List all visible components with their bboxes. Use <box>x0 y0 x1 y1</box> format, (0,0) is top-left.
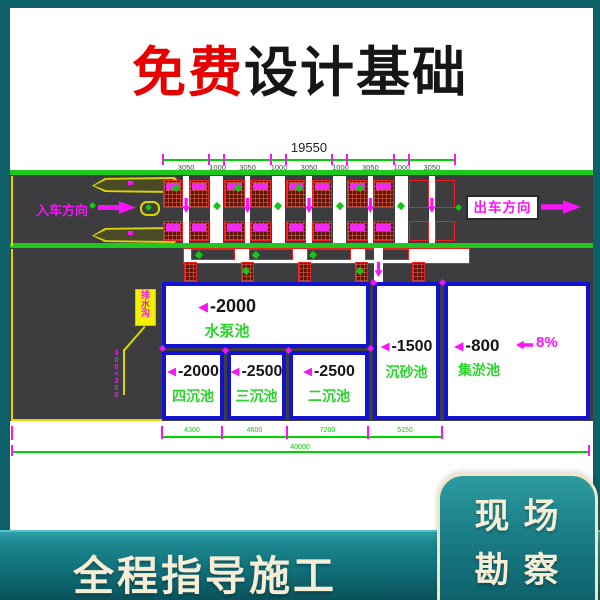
dim-label-bottom: 7200 <box>287 427 368 434</box>
promo-image: 免费设计基础 入车方向 出车方向 <box>0 0 600 600</box>
dim-overall-label: 40000 <box>240 444 360 451</box>
triangle-marker-icon: ◀ <box>198 299 208 314</box>
annotation-label: 排水沟 <box>139 290 152 317</box>
block-cap <box>350 224 364 231</box>
dim-line-top <box>163 159 455 161</box>
wash-block <box>312 180 332 208</box>
dim-label: 1000 <box>271 163 286 172</box>
wash-block <box>189 180 209 208</box>
pool-pump-depth: ◀-2000 <box>162 296 292 317</box>
dim-label: 3050 <box>286 163 332 172</box>
block-cap <box>315 183 329 190</box>
block-cap <box>192 224 206 231</box>
dim-label-bottom: 4300 <box>162 427 222 434</box>
slope-label: 8% <box>536 334 558 351</box>
pool-sand-depth: ◀-1500 <box>373 338 440 356</box>
block-cap <box>289 224 303 231</box>
wash-block-outline <box>409 180 429 208</box>
triangle-marker-icon: ◀ <box>167 366 176 378</box>
dim-label: 1000 <box>332 163 347 172</box>
triangle-marker-icon: ◀ <box>303 366 312 378</box>
pool-sand-name: 沉砂池 <box>373 362 440 382</box>
island-mark <box>128 181 133 185</box>
dim-label: 3050 <box>163 163 209 172</box>
dim-tick <box>588 445 590 456</box>
dim-tick <box>11 445 13 456</box>
wash-block <box>373 221 393 241</box>
dim-label: 1000 <box>209 163 224 172</box>
triangle-marker-icon: ◀ <box>231 366 240 378</box>
annotation-box: 排水沟 <box>135 289 156 326</box>
leader-line <box>123 349 125 395</box>
wash-block <box>224 180 244 208</box>
dim-label: 3050 <box>224 163 270 172</box>
block-cap <box>315 224 329 231</box>
dim-label: 3050 <box>409 163 455 172</box>
block-cap <box>253 224 267 231</box>
card-line-1: 现场 <box>440 488 595 539</box>
block-cap <box>253 183 267 190</box>
pool-fourth-name: 四沉池 <box>162 386 224 406</box>
pool-fourth-depth: ◀-2000 <box>162 363 224 381</box>
wash-block-outline <box>409 221 429 241</box>
wash-block <box>163 221 183 241</box>
dim-tick <box>11 426 13 440</box>
wash-block <box>286 180 306 208</box>
triangle-marker-icon: ◀ <box>381 341 390 353</box>
wash-block <box>250 180 270 208</box>
dim-label: 3050 <box>347 163 393 172</box>
dim-label-bottom: 5150 <box>368 427 442 434</box>
wash-block <box>312 221 332 241</box>
drain-bay <box>365 249 409 260</box>
pier-stub <box>298 262 311 282</box>
dim-line-bottom <box>162 436 442 438</box>
dim-tick <box>454 154 456 165</box>
block-cap <box>227 224 241 231</box>
wash-block <box>189 221 209 241</box>
banner-slogan: 全程指导施工 <box>30 542 380 600</box>
wash-block <box>250 221 270 241</box>
wash-block-outline <box>435 180 455 208</box>
wash-block <box>163 180 183 208</box>
pool-third-depth: ◀-2500 <box>227 363 286 381</box>
wash-block <box>286 221 306 241</box>
exit-direction-box: 出车方向 <box>466 195 539 220</box>
pool-second-name: 二沉池 <box>289 386 369 406</box>
wash-block <box>347 221 367 241</box>
block-cap <box>192 183 206 190</box>
pool-sludge-depth: ◀-800 <box>454 336 499 356</box>
block-cap <box>376 183 390 190</box>
exit-direction-label: 出车方向 <box>474 200 532 215</box>
pool-third-name: 三沉池 <box>227 386 286 406</box>
island-mark <box>128 231 133 235</box>
pool-sludge-name: 集淤池 <box>458 360 500 380</box>
triangle-marker-icon: ◀ <box>454 339 463 353</box>
pool-second-depth: ◀-2500 <box>289 363 369 381</box>
block-cap <box>166 224 180 231</box>
annotation-note: 300×300 <box>113 350 120 399</box>
block-cap <box>376 224 390 231</box>
apron-edge-line <box>11 176 13 246</box>
dim-total-label: 19550 <box>163 140 455 155</box>
dim-line-overall <box>12 451 590 453</box>
wash-block-outline <box>435 221 455 241</box>
pier-stub <box>412 262 425 282</box>
dim-label-bottom: 4600 <box>222 427 287 434</box>
pool-pump-name: 水泵池 <box>162 320 292 341</box>
apron-edge-line <box>11 419 162 421</box>
dim-label: 1000 <box>394 163 409 172</box>
site-survey-card: 现场 勘察 <box>437 473 598 600</box>
pier-stub <box>184 262 197 282</box>
apron-edge-line <box>11 249 13 421</box>
wash-block <box>224 221 244 241</box>
wash-block <box>373 180 393 208</box>
entry-direction-label: 入车方向 <box>36 200 88 219</box>
card-line-2: 勘察 <box>440 542 595 593</box>
